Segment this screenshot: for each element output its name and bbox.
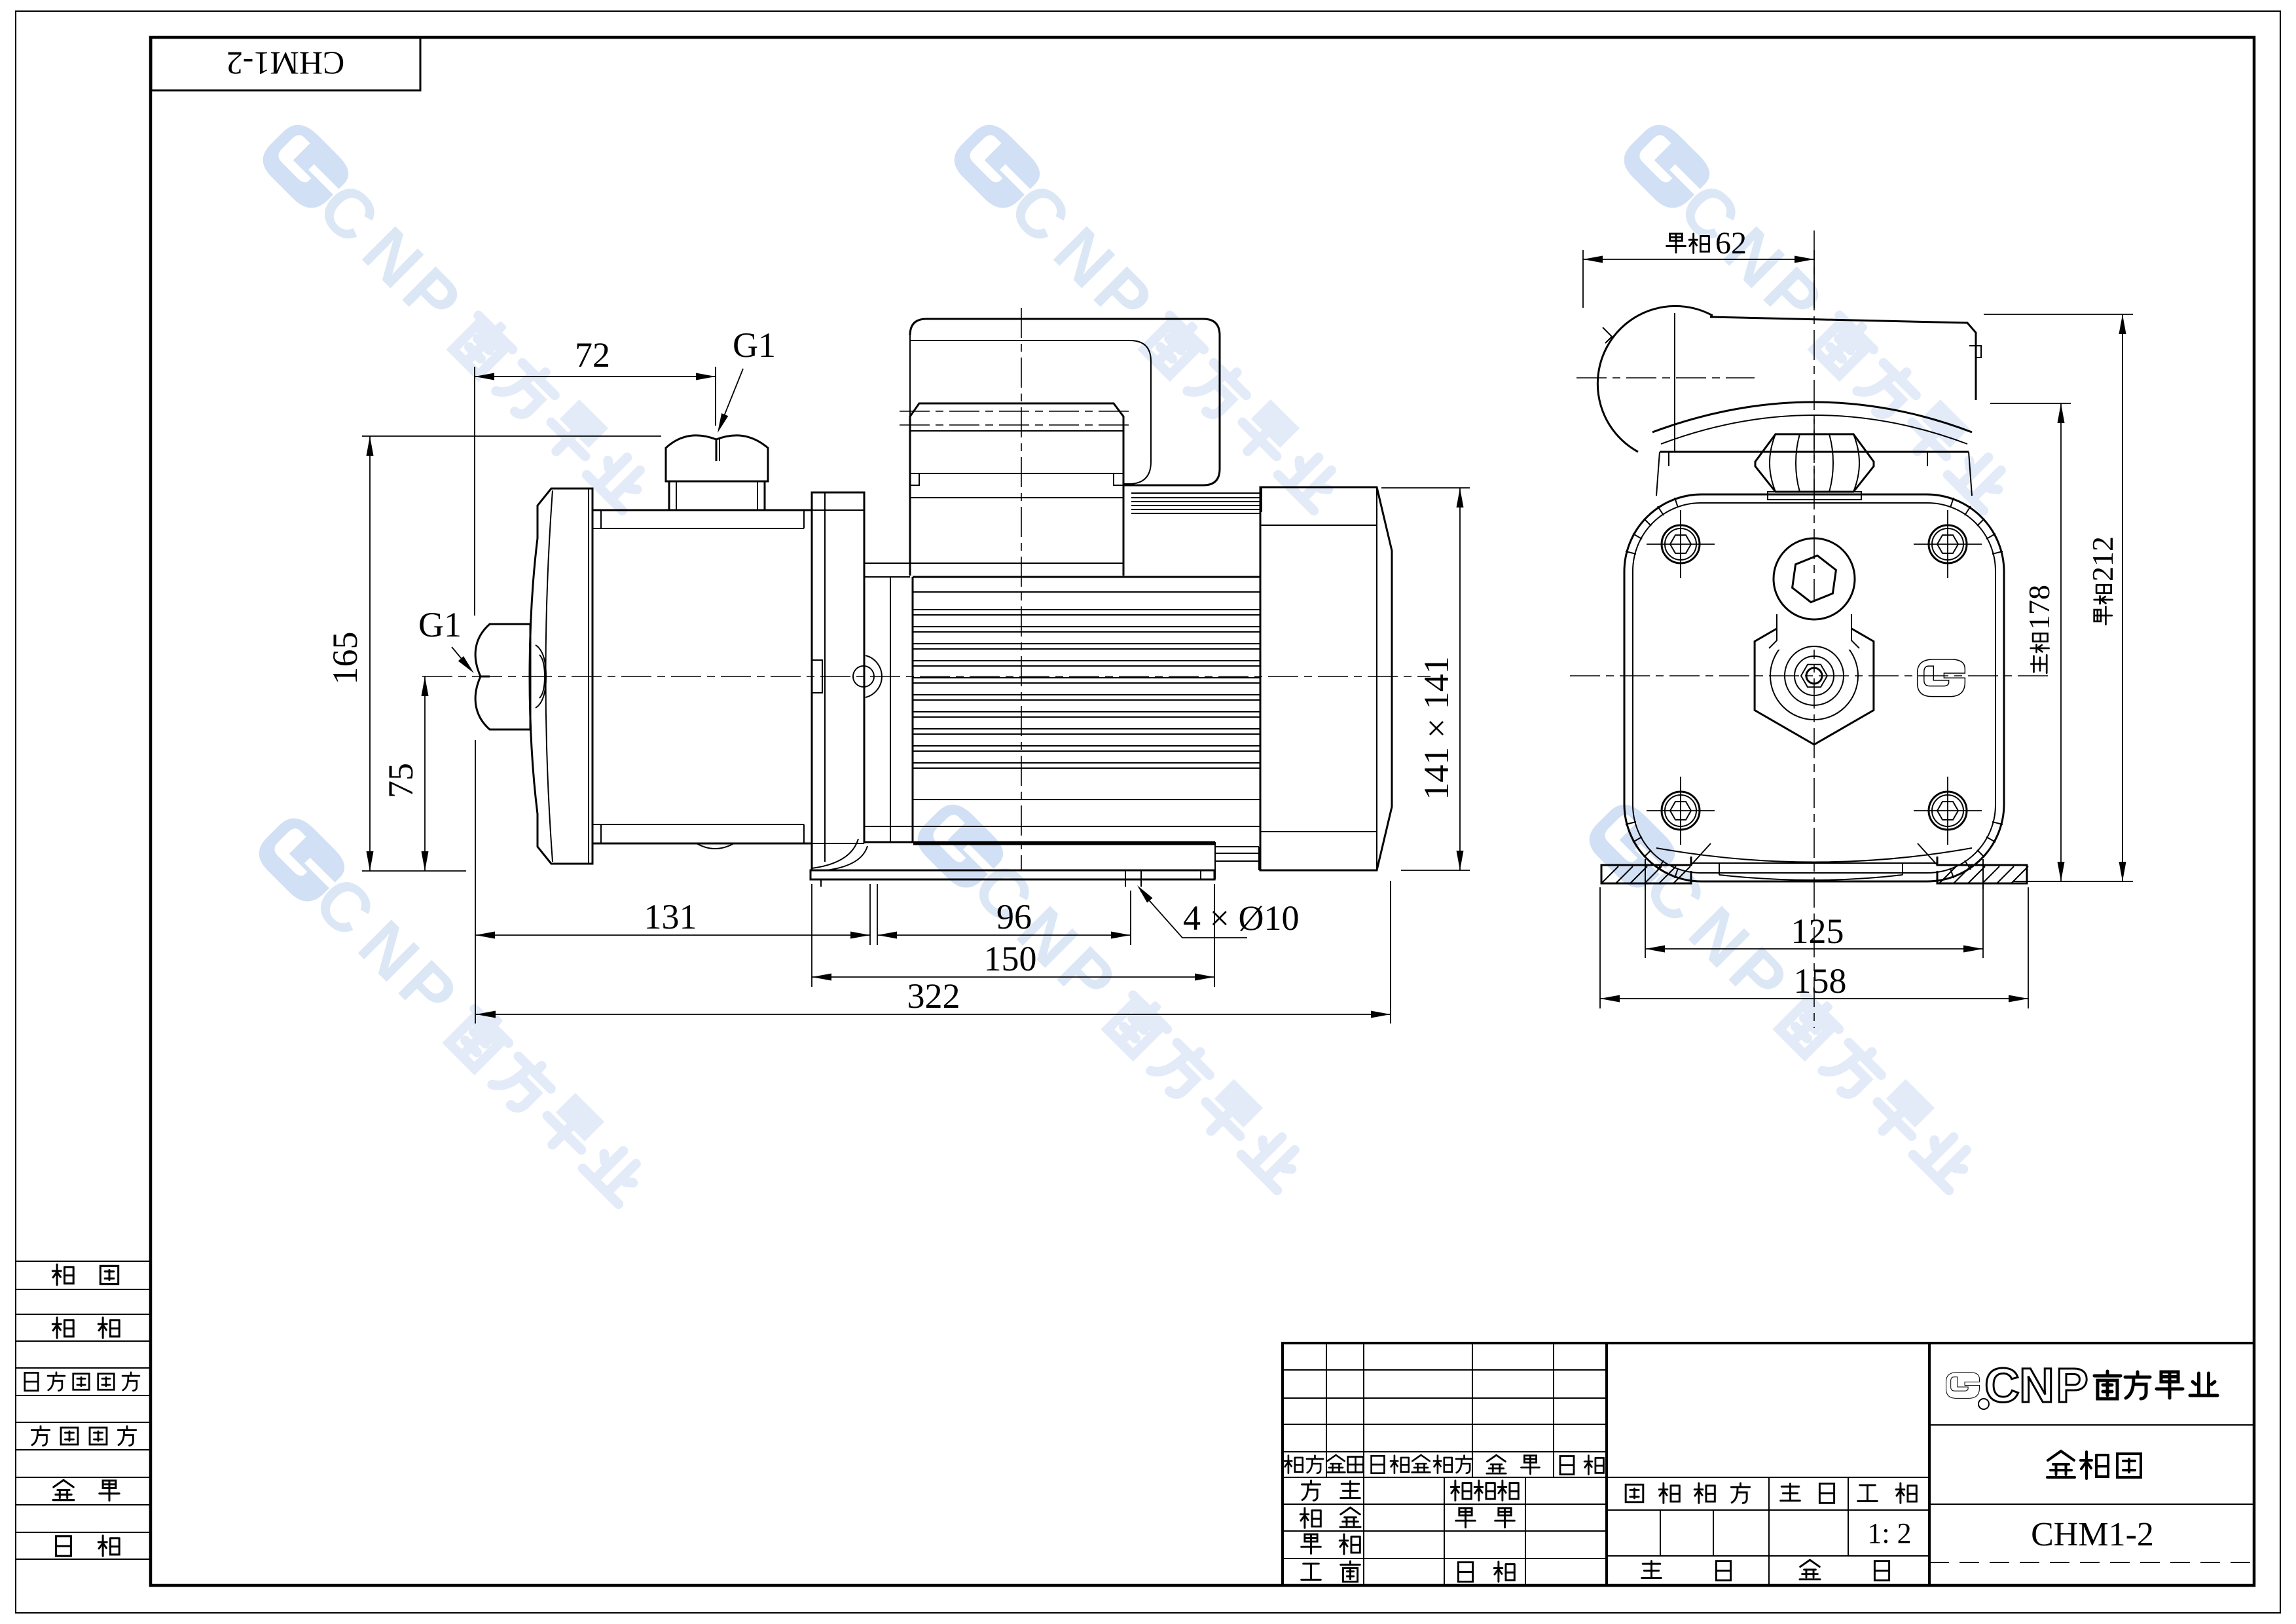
svg-text:150: 150 bbox=[984, 939, 1037, 978]
svg-text:4 × Ø10: 4 × Ø10 bbox=[1183, 898, 1299, 938]
svg-text:CHM1-2: CHM1-2 bbox=[2031, 1516, 2154, 1553]
svg-text:158: 158 bbox=[1794, 961, 1847, 1001]
svg-text:G1: G1 bbox=[418, 605, 462, 644]
svg-text:C: C bbox=[1984, 1358, 2019, 1412]
svg-text:62: 62 bbox=[1715, 226, 1747, 261]
svg-text:CHM1-2: CHM1-2 bbox=[227, 45, 345, 82]
svg-text:G1: G1 bbox=[733, 325, 776, 365]
svg-text:165: 165 bbox=[325, 632, 365, 685]
svg-text:131: 131 bbox=[644, 897, 697, 936]
svg-text:N: N bbox=[2019, 1358, 2054, 1412]
svg-text:1: 2: 1: 2 bbox=[1867, 1517, 1911, 1549]
svg-text:141 × 141: 141 × 141 bbox=[1417, 656, 1456, 800]
svg-text:178: 178 bbox=[2022, 585, 2056, 630]
svg-text:125: 125 bbox=[1791, 912, 1844, 951]
svg-text:72: 72 bbox=[575, 335, 610, 375]
svg-text:212: 212 bbox=[2086, 536, 2119, 581]
svg-text:75: 75 bbox=[381, 763, 420, 798]
svg-text:96: 96 bbox=[996, 897, 1032, 936]
svg-text:P: P bbox=[2056, 1358, 2088, 1412]
svg-text:322: 322 bbox=[907, 976, 960, 1016]
